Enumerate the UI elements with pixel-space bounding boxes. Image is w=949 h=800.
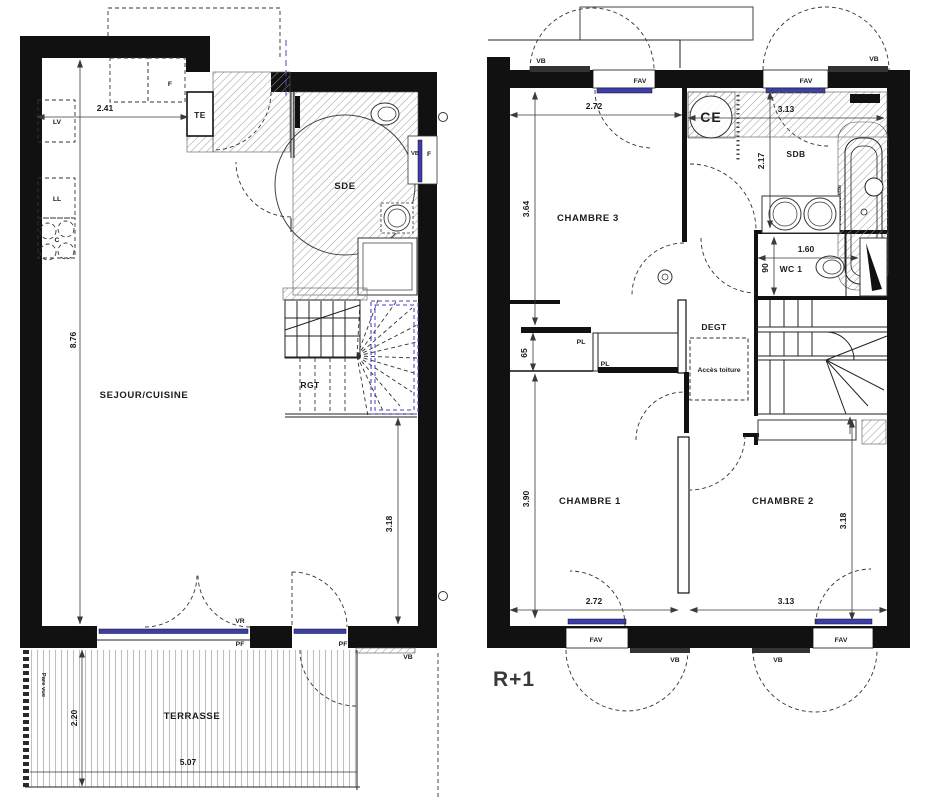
ground-staircase: RGT xyxy=(283,288,418,417)
sink-2 xyxy=(804,198,836,230)
pf-label-2: PF xyxy=(339,641,348,648)
ch2-door-arc xyxy=(690,435,745,490)
ce-label: CE xyxy=(700,109,721,125)
vb-label-b2: VB xyxy=(773,657,783,664)
floor-level-label: R+1 xyxy=(493,668,535,691)
toilet xyxy=(816,256,844,278)
dim-318f: 3.18 xyxy=(838,512,848,529)
terrasse-label: TERRASSE xyxy=(164,711,221,722)
vb-label: VB xyxy=(411,151,419,157)
ground-floor-plan: TE SDE VB F F LV LL xyxy=(20,8,448,797)
te-label: TE xyxy=(194,110,206,120)
dim-217: 2.17 xyxy=(756,152,766,169)
acces-toiture-label: Accès toiture xyxy=(697,367,740,374)
tub-faucet xyxy=(865,178,883,196)
dim-65: 65 xyxy=(519,348,529,358)
dim-313b: 3.13 xyxy=(778,596,795,606)
sde-window: VB F xyxy=(408,136,437,184)
vb-shutter-1 xyxy=(530,66,590,72)
first-partitions xyxy=(508,88,887,593)
kitchen-units: F LV LL C xyxy=(38,58,185,260)
pl-label-2: PL xyxy=(601,361,610,368)
dim-241: 2.41 xyxy=(97,103,114,113)
sdb-door-arc xyxy=(690,164,756,230)
marker-circle-bottom xyxy=(439,592,448,601)
sejour-label: SEJOUR/CUISINE xyxy=(100,390,189,401)
first-floor-plan: FAV FAV VB VB FAV FAV VB VB xyxy=(487,7,910,712)
winder-rays xyxy=(357,300,417,416)
lv-label: LV xyxy=(53,119,62,126)
washbasin xyxy=(371,103,399,125)
shower-tray xyxy=(358,238,417,295)
fridge-label: F xyxy=(168,81,172,88)
fav-label-3: FAV xyxy=(590,637,603,644)
sink-1 xyxy=(769,198,801,230)
vb-shutter-4 xyxy=(752,648,810,653)
sde-door-arc xyxy=(236,162,291,217)
ch3-door-arc xyxy=(632,243,684,295)
roof-outline xyxy=(488,7,753,68)
dim-876: 8.76 xyxy=(68,331,78,348)
sdb-room: CE Porte serviette SDB xyxy=(688,92,888,290)
degt-label: DEGT xyxy=(701,322,727,332)
ll-label: LL xyxy=(53,196,61,203)
dim-390: 3.90 xyxy=(521,490,531,507)
ch1-door-arc xyxy=(636,392,684,440)
dim-272t: 2.72 xyxy=(586,101,603,111)
chambre2-label: CHAMBRE 2 xyxy=(752,496,814,507)
vb-shutter-3 xyxy=(630,648,690,653)
vb-door-label: VB xyxy=(403,654,413,661)
chambre3-label: CHAMBRE 3 xyxy=(557,213,619,224)
wc-door-arc xyxy=(701,238,756,293)
entry-porch: TE xyxy=(187,72,290,152)
dim-220: 2.20 xyxy=(69,709,79,726)
pare-vue-label: Pare vue xyxy=(40,673,46,698)
dim-507: 5.07 xyxy=(180,757,197,767)
fav-label-2: FAV xyxy=(800,78,813,85)
vb-label-t1: VB xyxy=(536,58,546,65)
dim-313t: 3.13 xyxy=(778,104,795,114)
dim-364: 3.64 xyxy=(521,200,531,217)
dim-90: 90 xyxy=(760,263,770,273)
rgt-label: RGT xyxy=(300,380,320,390)
sde-label: SDE xyxy=(334,181,355,192)
vb-label-b1: VB xyxy=(670,657,680,664)
post-symbol xyxy=(658,270,672,284)
dim-318g: 3.18 xyxy=(384,515,394,532)
terrasse-area xyxy=(25,650,438,797)
chambre1-label: CHAMBRE 1 xyxy=(559,496,621,507)
radiator xyxy=(862,420,886,444)
vb-shutter-2 xyxy=(828,66,888,72)
f-window-label: F xyxy=(427,151,431,158)
dim-272b: 2.72 xyxy=(586,596,603,606)
fav-label-4: FAV xyxy=(835,637,848,644)
vr-label: VR xyxy=(235,618,245,625)
dim-160: 1.60 xyxy=(798,244,815,254)
sdb-label: SDB xyxy=(786,149,805,159)
floorplan-canvas: TE SDE VB F F LV LL xyxy=(0,0,949,800)
floorplan-drawing: TE SDE VB F F LV LL xyxy=(0,0,949,800)
vb-label-t2: VB xyxy=(869,56,879,63)
first-staircase xyxy=(756,300,887,444)
wc-label: WC 1 xyxy=(780,264,803,274)
pf-label-1: PF xyxy=(236,641,245,648)
ch1-ch2-wall xyxy=(678,437,689,593)
door-leaf xyxy=(295,96,300,128)
fav-label-1: FAV xyxy=(634,78,647,85)
marker-circle-top xyxy=(439,113,448,122)
pl-label-1: PL xyxy=(577,339,586,346)
hob-label: C xyxy=(55,237,60,244)
